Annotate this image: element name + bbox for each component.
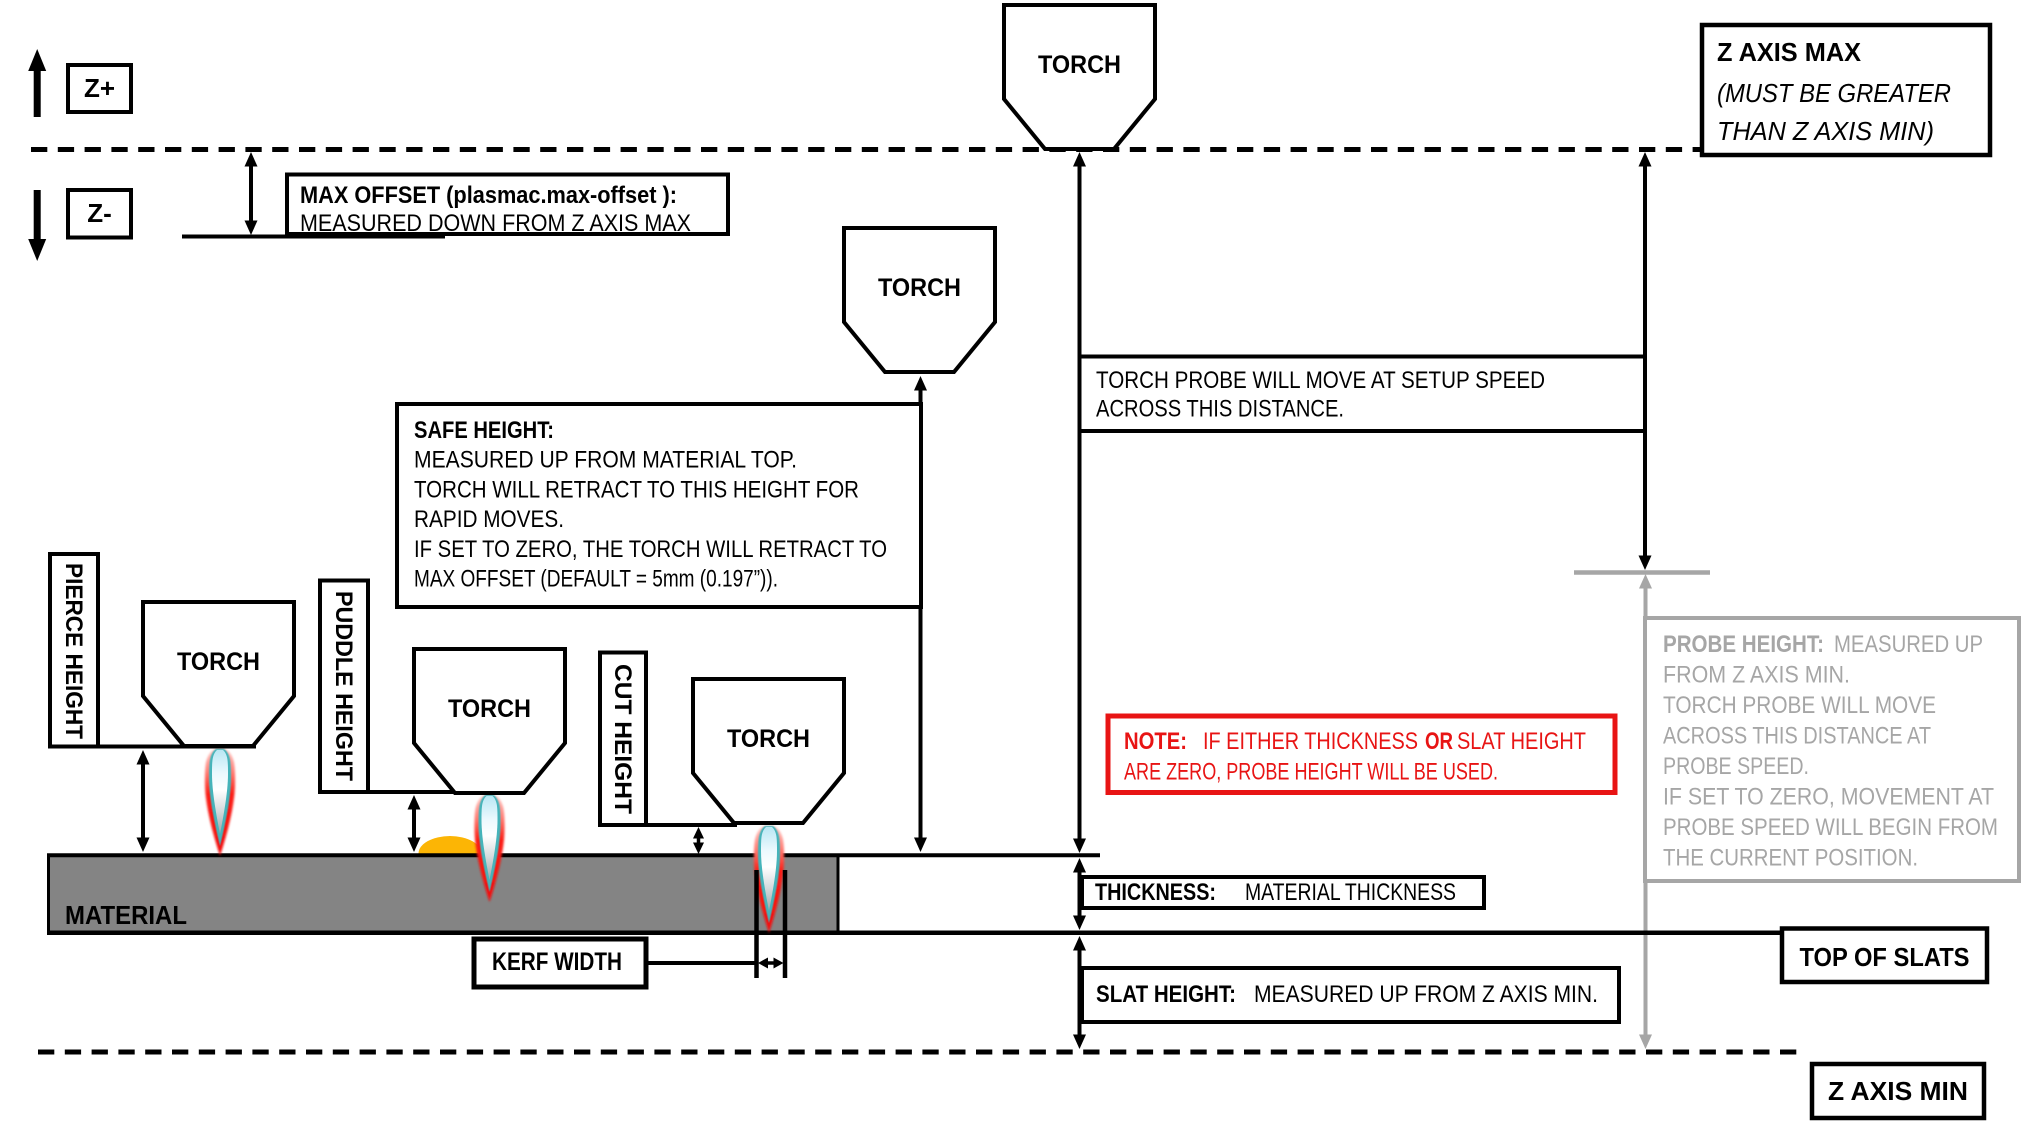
svg-text:(MUST BE GREATER: (MUST BE GREATER: [1717, 78, 1951, 108]
svg-text:TORCH PROBE WILL MOVE: TORCH PROBE WILL MOVE: [1663, 692, 1936, 719]
svg-text:TOP OF SLATS: TOP OF SLATS: [1800, 942, 1970, 972]
svg-text:Z AXIS MAX: Z AXIS MAX: [1717, 37, 1862, 67]
svg-text:RAPID MOVES.: RAPID MOVES.: [414, 506, 564, 533]
svg-text:OR: OR: [1425, 728, 1453, 755]
svg-text:PIERCE HEIGHT: PIERCE HEIGHT: [60, 563, 87, 739]
svg-text:NOTE:: NOTE:: [1124, 728, 1187, 755]
svg-text:MATERIAL: MATERIAL: [65, 900, 187, 930]
svg-text:Z+: Z+: [84, 73, 115, 103]
svg-text:TORCH WILL RETRACT TO THIS HEI: TORCH WILL RETRACT TO THIS HEIGHT FOR: [414, 476, 859, 503]
svg-text:THE CURRENT POSITION.: THE CURRENT POSITION.: [1663, 845, 1918, 872]
svg-text:PROBE SPEED WILL BEGIN FROM: PROBE SPEED WILL BEGIN FROM: [1663, 814, 1998, 841]
svg-text:SLAT HEIGHT:: SLAT HEIGHT:: [1096, 981, 1236, 1008]
svg-text:PUDDLE HEIGHT: PUDDLE HEIGHT: [330, 591, 357, 781]
svg-text:IF SET TO ZERO, MOVEMENT AT: IF SET TO ZERO, MOVEMENT AT: [1663, 784, 1994, 811]
svg-text:SLAT HEIGHT: SLAT HEIGHT: [1457, 728, 1586, 755]
svg-text:MEASURED UP FROM MATERIAL TOP.: MEASURED UP FROM MATERIAL TOP.: [414, 447, 797, 474]
svg-text:THAN Z AXIS MIN): THAN Z AXIS MIN): [1717, 116, 1934, 146]
svg-text:ACROSS THIS DISTANCE AT: ACROSS THIS DISTANCE AT: [1663, 723, 1931, 750]
svg-text:MEASURED UP FROM Z AXIS MIN.: MEASURED UP FROM Z AXIS MIN.: [1254, 981, 1598, 1008]
svg-text:THICKNESS:: THICKNESS:: [1095, 879, 1216, 906]
svg-text:MEASURED DOWN FROM Z AXIS MAX: MEASURED DOWN FROM Z AXIS MAX: [300, 210, 691, 237]
svg-text:MEASURED UP: MEASURED UP: [1834, 631, 1983, 658]
svg-text:PROBE HEIGHT:: PROBE HEIGHT:: [1663, 631, 1824, 658]
svg-text:Z-: Z-: [87, 198, 112, 228]
svg-text:CUT HEIGHT: CUT HEIGHT: [609, 664, 636, 814]
svg-text:MAX OFFSET (plasmac.max-offset: MAX OFFSET (plasmac.max-offset ):: [300, 182, 677, 209]
svg-text:SAFE HEIGHT:: SAFE HEIGHT:: [414, 417, 554, 444]
svg-text:ACROSS THIS DISTANCE.: ACROSS THIS DISTANCE.: [1096, 396, 1344, 423]
svg-text:FROM Z AXIS MIN.: FROM Z AXIS MIN.: [1663, 662, 1850, 689]
svg-text:KERF WIDTH: KERF WIDTH: [492, 948, 622, 976]
svg-text:ARE ZERO, PROBE HEIGHT WILL BE: ARE ZERO, PROBE HEIGHT WILL BE USED.: [1124, 759, 1498, 786]
svg-text:Z AXIS MIN: Z AXIS MIN: [1828, 1076, 1968, 1106]
svg-text:MATERIAL THICKNESS: MATERIAL THICKNESS: [1245, 879, 1456, 906]
svg-text:IF EITHER THICKNESS: IF EITHER THICKNESS: [1203, 728, 1418, 755]
svg-text:PROBE SPEED.: PROBE SPEED.: [1663, 753, 1809, 780]
svg-text:TORCH PROBE WILL MOVE AT SETUP: TORCH PROBE WILL MOVE AT SETUP SPEED: [1096, 367, 1545, 394]
svg-text:IF SET TO ZERO, THE TORCH WILL: IF SET TO ZERO, THE TORCH WILL RETRACT T…: [414, 536, 887, 563]
svg-text:MAX OFFSET (DEFAULT = 5mm (0.1: MAX OFFSET (DEFAULT = 5mm (0.197”)).: [414, 566, 778, 593]
